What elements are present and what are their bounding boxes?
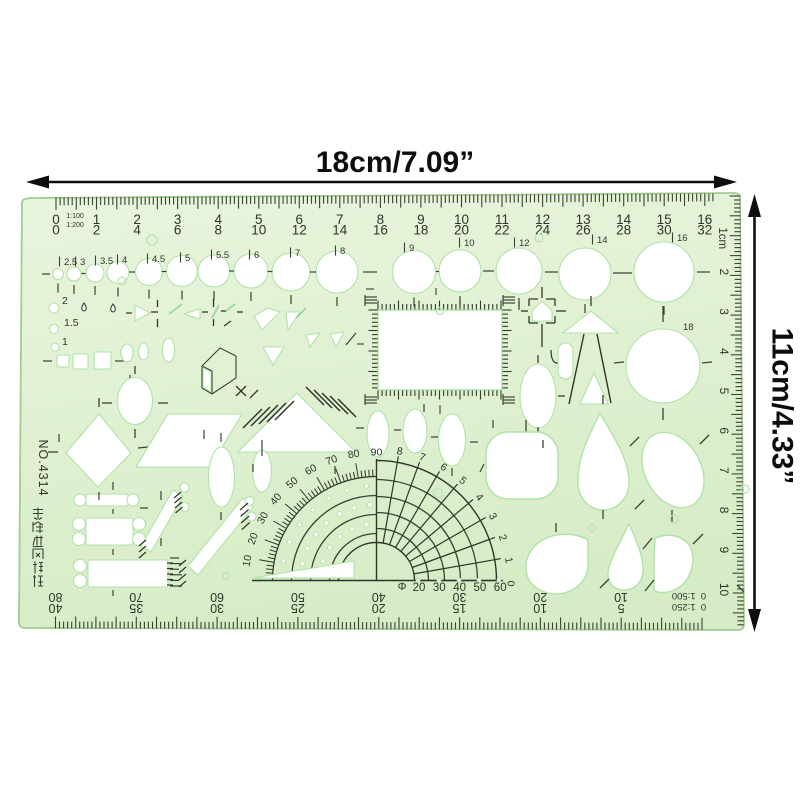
svg-text:5.5: 5.5 bbox=[216, 250, 229, 261]
svg-text:0: 0 bbox=[52, 223, 60, 238]
svg-text:4: 4 bbox=[717, 348, 731, 355]
svg-text:1.5: 1.5 bbox=[64, 317, 79, 329]
svg-text:16: 16 bbox=[677, 233, 688, 244]
svg-text:11cm/4.33”: 11cm/4.33” bbox=[766, 328, 799, 485]
svg-text:3.5: 3.5 bbox=[100, 256, 113, 267]
svg-text:0 1:250: 0 1:250 bbox=[672, 601, 706, 612]
svg-text:28: 28 bbox=[616, 223, 631, 238]
svg-text:9: 9 bbox=[717, 546, 731, 553]
svg-text:12: 12 bbox=[292, 223, 307, 238]
svg-text:9: 9 bbox=[409, 243, 414, 254]
svg-text:Φ: Φ bbox=[398, 581, 407, 593]
svg-text:26: 26 bbox=[576, 223, 591, 238]
svg-text:0 1:500: 0 1:500 bbox=[672, 590, 706, 601]
svg-text:8: 8 bbox=[340, 246, 345, 257]
svg-text:12: 12 bbox=[519, 238, 530, 249]
svg-text:16: 16 bbox=[373, 223, 388, 238]
svg-text:10: 10 bbox=[533, 601, 547, 615]
svg-text:90: 90 bbox=[371, 447, 383, 459]
svg-text:50: 50 bbox=[474, 582, 487, 594]
svg-text:6: 6 bbox=[254, 250, 259, 261]
svg-text:7: 7 bbox=[295, 248, 300, 259]
svg-text:5: 5 bbox=[185, 253, 190, 264]
svg-text:NO.4314: NO.4314 bbox=[36, 439, 50, 496]
svg-text:2: 2 bbox=[93, 223, 101, 238]
svg-text:5: 5 bbox=[618, 601, 625, 615]
svg-text:8: 8 bbox=[214, 223, 222, 238]
svg-text:20: 20 bbox=[454, 223, 469, 238]
svg-text:24: 24 bbox=[535, 223, 551, 238]
svg-text:10: 10 bbox=[251, 223, 266, 238]
svg-text:40: 40 bbox=[49, 601, 63, 615]
svg-text:30: 30 bbox=[433, 582, 446, 594]
svg-text:2: 2 bbox=[62, 295, 68, 307]
svg-text:30: 30 bbox=[657, 223, 672, 238]
svg-text:1:100: 1:100 bbox=[66, 213, 84, 220]
svg-text:20: 20 bbox=[372, 601, 386, 615]
svg-text:8: 8 bbox=[717, 507, 731, 514]
svg-text:7: 7 bbox=[717, 467, 731, 474]
svg-text:10: 10 bbox=[241, 554, 255, 568]
svg-text:40: 40 bbox=[453, 582, 466, 594]
svg-text:2: 2 bbox=[717, 269, 731, 276]
svg-text:4: 4 bbox=[133, 223, 141, 238]
svg-text:30: 30 bbox=[210, 601, 224, 615]
svg-text:3: 3 bbox=[80, 257, 85, 268]
svg-text:1:200: 1:200 bbox=[66, 222, 84, 229]
svg-text:35: 35 bbox=[129, 601, 143, 615]
svg-text:14: 14 bbox=[332, 223, 348, 238]
svg-text:14: 14 bbox=[597, 235, 608, 246]
svg-text:4: 4 bbox=[122, 255, 127, 266]
svg-text:80: 80 bbox=[347, 447, 361, 461]
svg-text:22: 22 bbox=[494, 223, 509, 238]
svg-text:5: 5 bbox=[717, 388, 731, 395]
svg-text:1: 1 bbox=[62, 336, 68, 348]
svg-text:10: 10 bbox=[717, 583, 731, 597]
svg-text:3: 3 bbox=[717, 308, 731, 315]
svg-text:6: 6 bbox=[174, 223, 182, 238]
svg-text:18: 18 bbox=[683, 322, 694, 333]
svg-text:18cm/7.09”: 18cm/7.09” bbox=[316, 146, 474, 179]
svg-text:1cm: 1cm bbox=[716, 227, 728, 249]
svg-text:18: 18 bbox=[413, 223, 428, 238]
svg-text:20: 20 bbox=[413, 582, 426, 594]
svg-text:10: 10 bbox=[464, 238, 475, 249]
svg-text:60: 60 bbox=[494, 582, 507, 594]
svg-text:25: 25 bbox=[291, 601, 305, 615]
svg-text:15: 15 bbox=[453, 601, 467, 615]
svg-text:32: 32 bbox=[697, 223, 712, 238]
svg-text:4.5: 4.5 bbox=[152, 254, 165, 265]
svg-text:6: 6 bbox=[717, 427, 731, 434]
